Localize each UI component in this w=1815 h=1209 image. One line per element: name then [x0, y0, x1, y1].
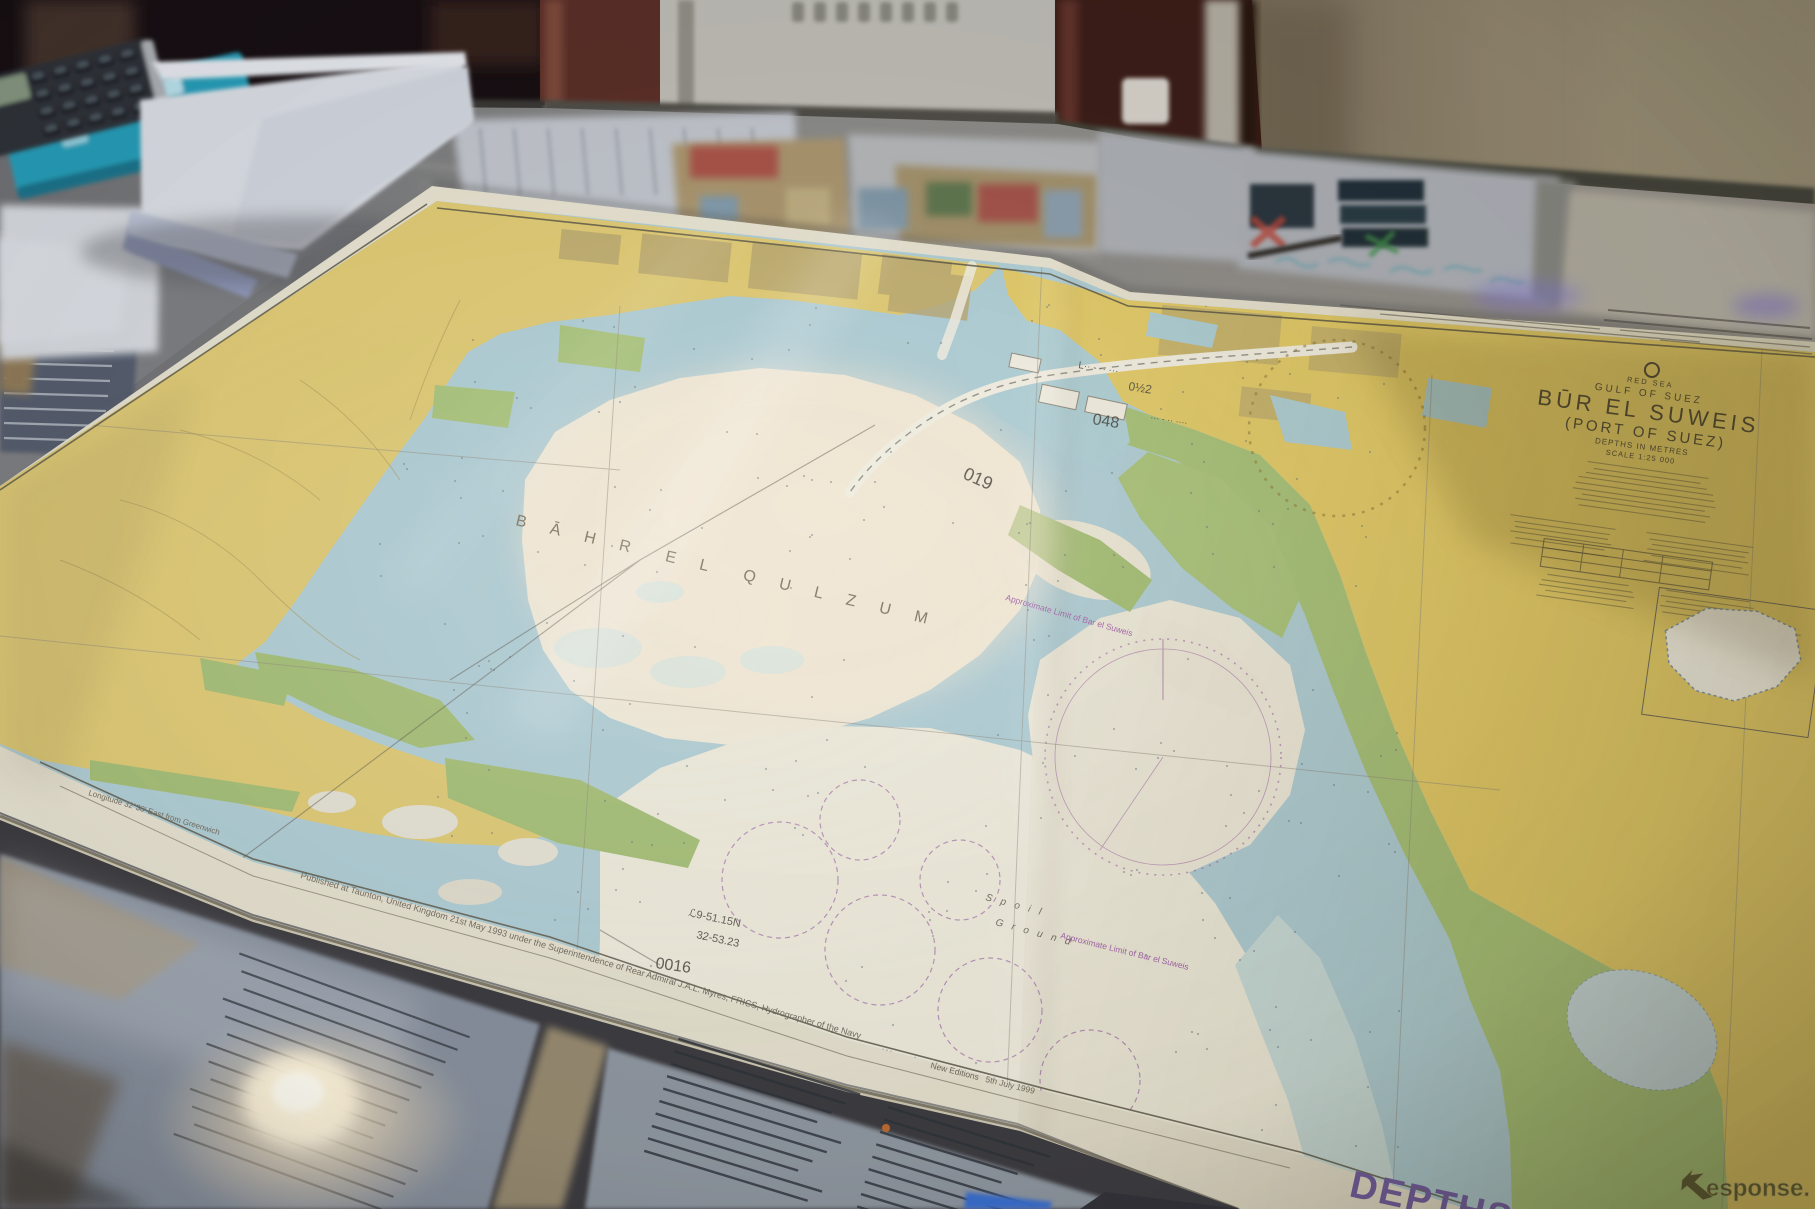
- svg-text:esponse.: esponse.: [1706, 1175, 1810, 1202]
